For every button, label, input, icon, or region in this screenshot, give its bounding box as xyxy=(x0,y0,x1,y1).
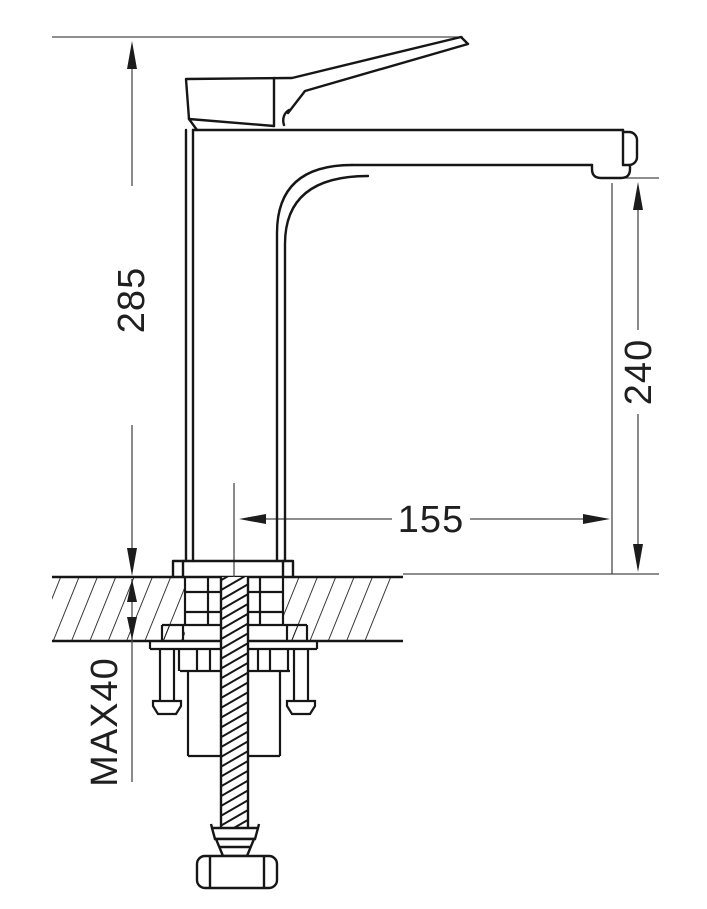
arrow-240-down xyxy=(633,544,643,572)
faucet-outline xyxy=(173,37,637,577)
spout-endcap xyxy=(623,132,637,165)
arrow-240-up xyxy=(633,182,643,210)
arrow-155-right xyxy=(583,514,610,524)
dimension-lines xyxy=(52,37,659,782)
base-flange-outline xyxy=(173,561,293,577)
handle-block-bottom xyxy=(189,119,274,126)
dim-label-240: 240 xyxy=(618,339,660,405)
arrow-285-up xyxy=(127,41,137,69)
faucet-spout xyxy=(193,130,637,178)
body-right-inner-fillet xyxy=(285,176,368,561)
arrow-155-left xyxy=(239,514,266,524)
faucet-handle xyxy=(186,37,468,130)
handle-lever xyxy=(186,37,468,119)
technical-drawing-page: 285 240 155 MAX40 xyxy=(0,0,707,909)
dim-label-max40: MAX40 xyxy=(84,657,126,787)
dim-label-285: 285 xyxy=(111,267,153,333)
base-flange xyxy=(173,561,293,577)
rod-end-assembly xyxy=(197,824,277,888)
dim-label-155: 155 xyxy=(398,499,464,541)
fixing-screw-left xyxy=(153,649,181,714)
threaded-rod xyxy=(221,577,248,828)
faucet-dimension-drawing: 285 240 155 MAX40 xyxy=(0,0,707,909)
arrow-285-down xyxy=(127,548,137,576)
fixing-screw-right xyxy=(287,649,315,714)
aerator xyxy=(592,165,630,178)
faucet-body-column xyxy=(186,130,368,561)
adjusting-nut xyxy=(197,856,277,888)
